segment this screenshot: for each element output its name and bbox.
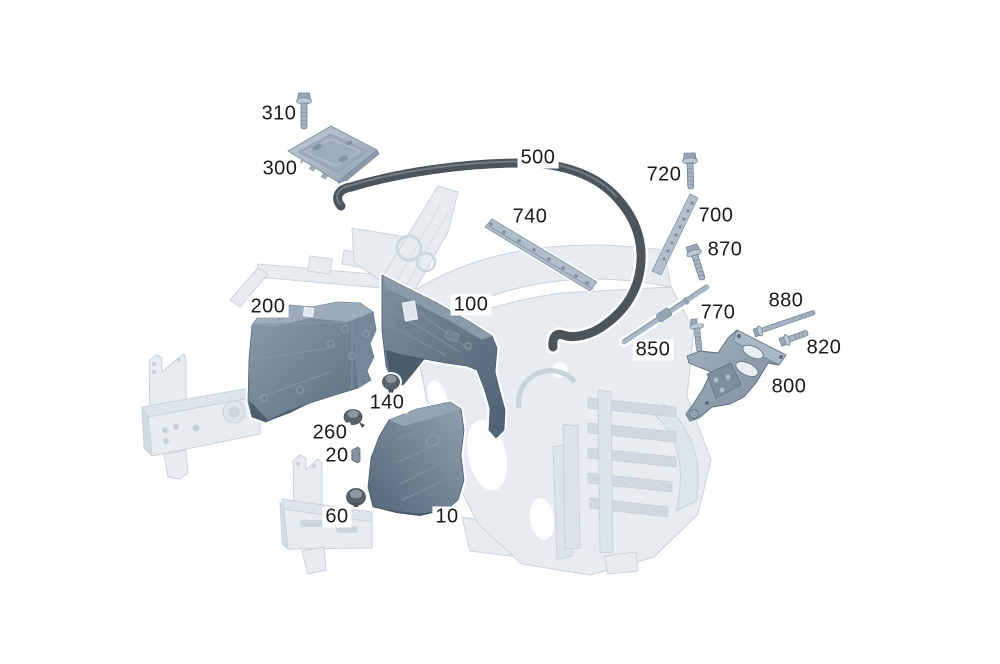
part-callout-10[interactable]: 10: [432, 507, 461, 528]
part-callout-140[interactable]: 140: [367, 393, 408, 414]
part-callout-850[interactable]: 850: [633, 340, 674, 361]
part-callout-870[interactable]: 870: [705, 240, 746, 261]
callout-layer: 3103005007207407008702001008807708508208…: [0, 0, 1000, 664]
part-callout-20[interactable]: 20: [322, 446, 351, 467]
part-callout-800[interactable]: 800: [769, 377, 810, 398]
part-callout-100[interactable]: 100: [451, 295, 492, 316]
part-callout-200[interactable]: 200: [248, 297, 289, 318]
part-callout-770[interactable]: 770: [698, 303, 739, 324]
parts-diagram: 3103005007207407008702001008807708508208…: [0, 0, 1000, 664]
part-callout-700[interactable]: 700: [696, 206, 737, 227]
part-callout-740[interactable]: 740: [510, 207, 551, 228]
part-callout-880[interactable]: 880: [766, 291, 807, 312]
part-callout-310[interactable]: 310: [259, 104, 300, 125]
part-callout-820[interactable]: 820: [804, 338, 845, 359]
part-callout-300[interactable]: 300: [260, 159, 301, 180]
part-callout-720[interactable]: 720: [644, 165, 685, 186]
part-callout-500[interactable]: 500: [518, 148, 559, 169]
part-callout-260[interactable]: 260: [310, 423, 351, 444]
part-callout-60[interactable]: 60: [322, 507, 351, 528]
